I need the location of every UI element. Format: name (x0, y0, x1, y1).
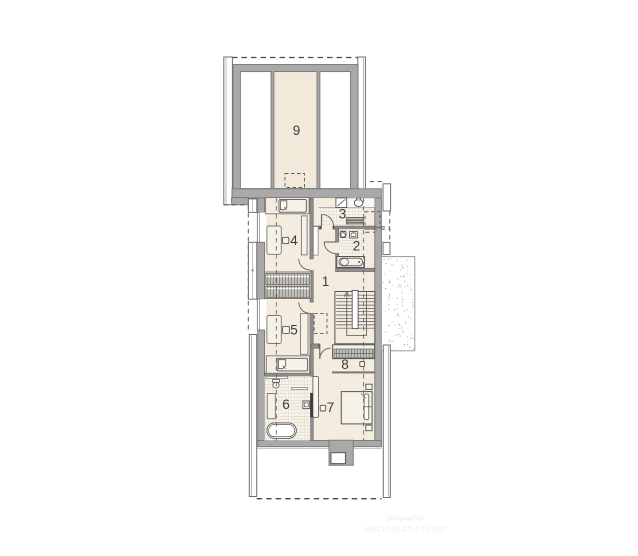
svg-text:1: 1 (322, 274, 330, 289)
svg-text:9: 9 (293, 123, 301, 138)
svg-text:2: 2 (353, 239, 361, 254)
svg-text:4: 4 (290, 233, 298, 248)
svg-text:8: 8 (341, 357, 349, 372)
svg-text:5: 5 (290, 323, 298, 338)
svg-text:3: 3 (339, 206, 347, 221)
svg-text:ARCHITECT STUDIO: ARCHITECT STUDIO (365, 527, 446, 534)
svg-text:6: 6 (282, 397, 290, 412)
svg-text:7: 7 (327, 400, 335, 415)
svg-text:Designed by: Designed by (385, 514, 424, 523)
